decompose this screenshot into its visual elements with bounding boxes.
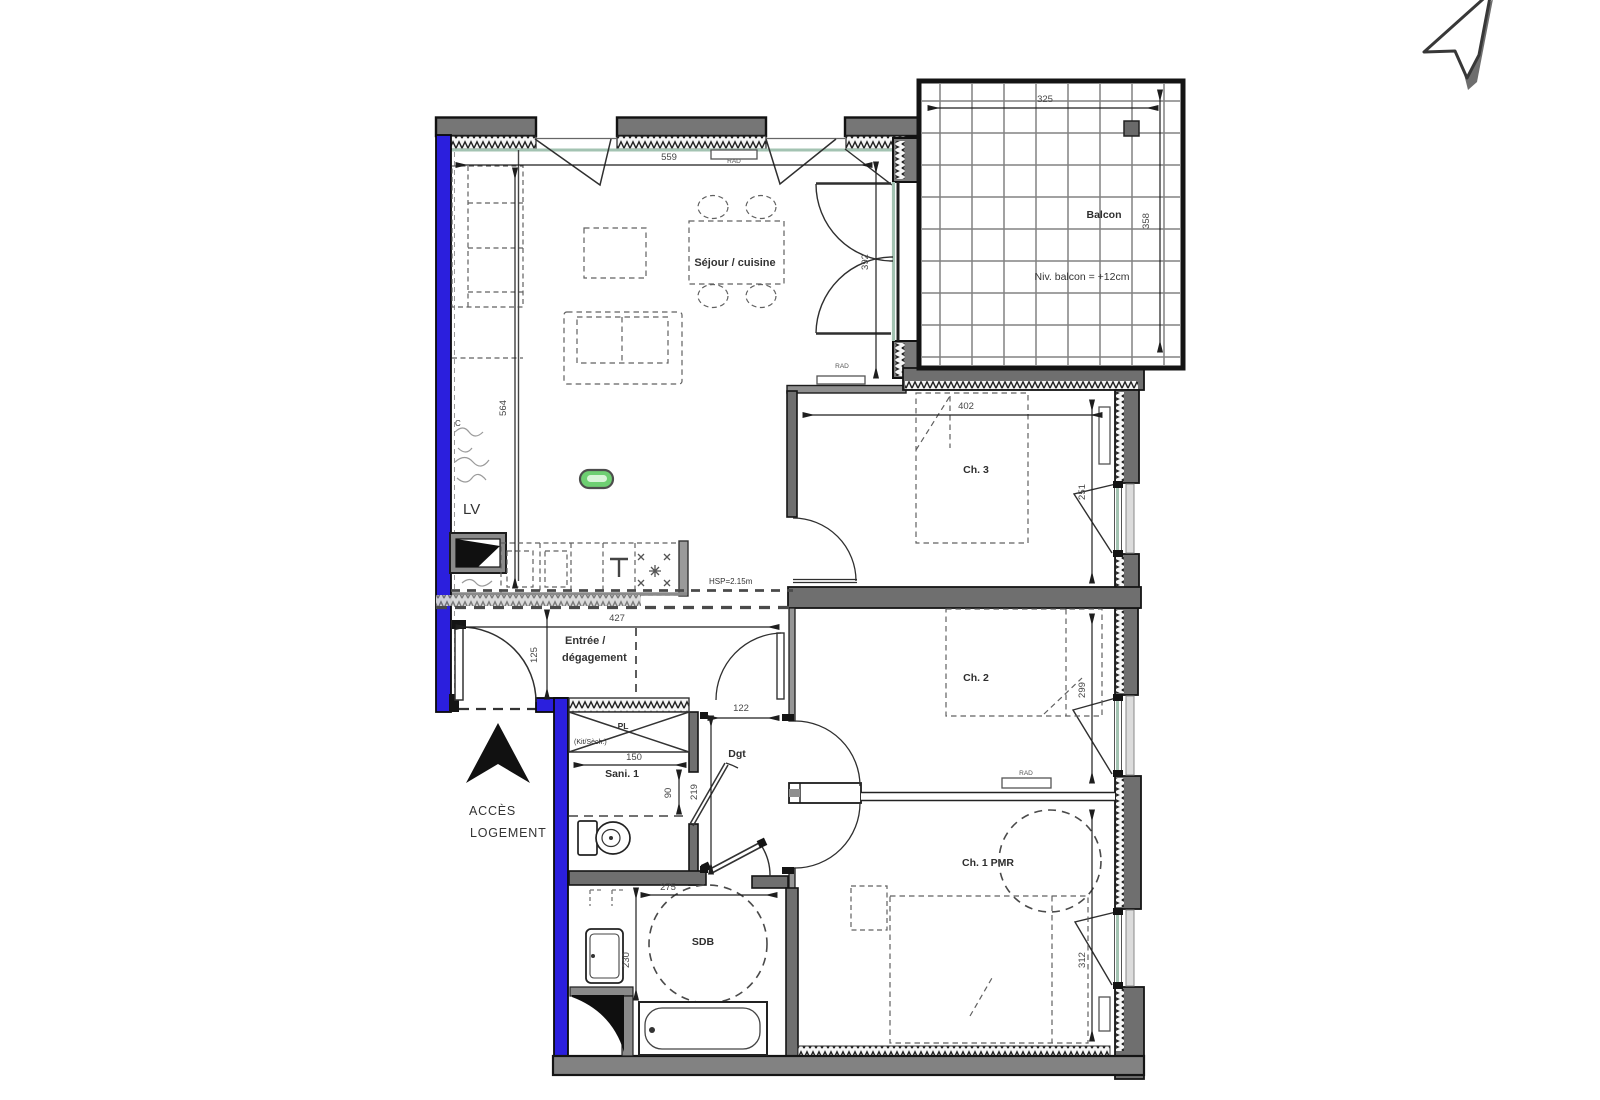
svg-text:Entrée /: Entrée / bbox=[565, 635, 605, 647]
svg-text:392: 392 bbox=[860, 254, 871, 270]
svg-text:150: 150 bbox=[626, 752, 642, 763]
svg-text:299: 299 bbox=[1077, 682, 1088, 698]
svg-text:402: 402 bbox=[958, 401, 974, 412]
svg-text:PL: PL bbox=[618, 721, 629, 731]
svg-text:Ch. 3: Ch. 3 bbox=[963, 464, 989, 476]
svg-text:LOGEMENT: LOGEMENT bbox=[470, 826, 547, 840]
svg-text:325: 325 bbox=[1037, 94, 1053, 105]
svg-text:Dgt: Dgt bbox=[728, 748, 746, 760]
svg-text:Balcon: Balcon bbox=[1086, 209, 1121, 221]
svg-text:219: 219 bbox=[689, 784, 700, 800]
svg-text:RAD: RAD bbox=[1019, 770, 1033, 777]
svg-text:358: 358 bbox=[1141, 213, 1152, 229]
svg-text:230: 230 bbox=[621, 952, 632, 968]
svg-text:RAD: RAD bbox=[727, 158, 741, 165]
svg-text:427: 427 bbox=[609, 613, 625, 624]
svg-text:Ch. 1 PMR: Ch. 1 PMR bbox=[962, 857, 1014, 869]
svg-text:Niv. balcon = +12cm: Niv. balcon = +12cm bbox=[1035, 271, 1130, 283]
svg-text:559: 559 bbox=[661, 152, 677, 163]
svg-text:ACCÈS: ACCÈS bbox=[469, 803, 516, 818]
svg-text:Séjour / cuisine: Séjour / cuisine bbox=[694, 257, 775, 269]
svg-text:C: C bbox=[455, 419, 461, 428]
svg-text:LV: LV bbox=[463, 501, 480, 518]
svg-text:125: 125 bbox=[529, 647, 540, 663]
svg-text:275: 275 bbox=[660, 882, 676, 893]
svg-text:HSP=2.15m: HSP=2.15m bbox=[709, 577, 753, 586]
svg-text:90: 90 bbox=[663, 788, 674, 799]
svg-text:312: 312 bbox=[1077, 952, 1088, 968]
svg-text:Ch. 2: Ch. 2 bbox=[963, 672, 989, 684]
svg-text:(Kit/Sèch.): (Kit/Sèch.) bbox=[574, 739, 607, 746]
svg-text:RAD: RAD bbox=[835, 363, 849, 370]
svg-text:SDB: SDB bbox=[692, 936, 715, 948]
svg-text:564: 564 bbox=[498, 400, 509, 416]
svg-text:251: 251 bbox=[1077, 484, 1088, 500]
svg-text:dégagement: dégagement bbox=[562, 652, 627, 664]
svg-text:Sani. 1: Sani. 1 bbox=[605, 768, 639, 780]
svg-text:122: 122 bbox=[733, 703, 749, 714]
